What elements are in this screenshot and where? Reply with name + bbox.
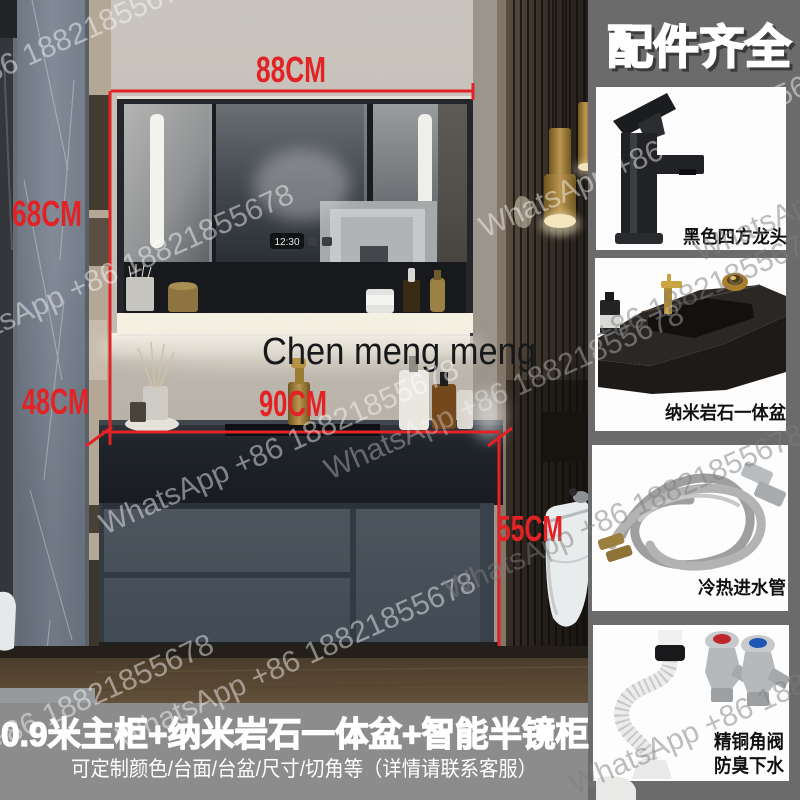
svg-text:纳米岩石一体盆: 纳米岩石一体盆 <box>665 402 787 423</box>
svg-text:Chen meng meng: Chen meng meng <box>262 331 536 373</box>
svg-text:配件齐全: 配件齐全 <box>607 21 792 73</box>
svg-text:冷热进水管: 冷热进水管 <box>698 577 786 598</box>
svg-text:0.9米主柜+纳米岩石一体盆+智能半镜柜: 0.9米主柜+纳米岩石一体盆+智能半镜柜 <box>1 716 589 754</box>
svg-text:12:30: 12:30 <box>274 237 299 248</box>
svg-text:可定制颜色/台面/台盆/尺寸/切角等（详情请联系客服）: 可定制颜色/台面/台盆/尺寸/切角等（详情请联系客服） <box>71 758 537 781</box>
svg-text:48CM: 48CM <box>22 381 89 422</box>
svg-text:68CM: 68CM <box>12 193 82 234</box>
svg-text:88CM: 88CM <box>256 49 326 90</box>
svg-text:防臭下水: 防臭下水 <box>714 754 785 777</box>
